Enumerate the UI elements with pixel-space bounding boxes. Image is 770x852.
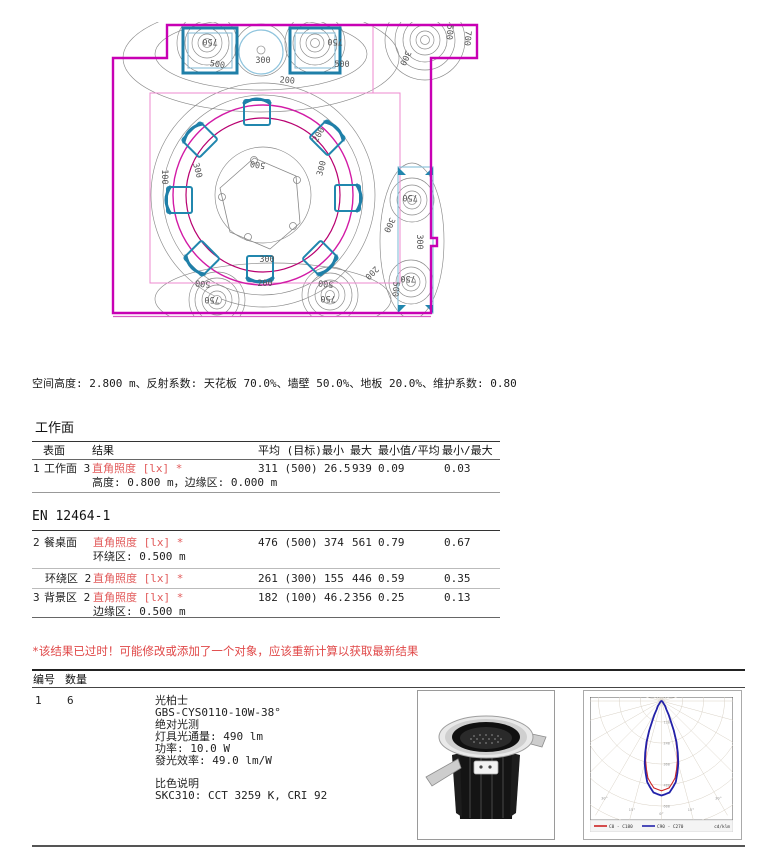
en-standard-title: EN 12464-1 xyxy=(32,510,110,525)
svg-text:30°: 30° xyxy=(715,796,722,801)
svg-text:360: 360 xyxy=(664,762,670,766)
col-min-max: 最小/最大 xyxy=(442,445,493,458)
legend-c90-label: C90 - C270 xyxy=(657,824,684,830)
legend-unit: cd/klm xyxy=(714,824,730,830)
isolux-label: 750 xyxy=(320,293,335,303)
row-min-max: 0.03 xyxy=(444,463,471,476)
rule xyxy=(32,492,500,493)
col-surface: 表面 xyxy=(43,445,65,458)
col-avg: 平均 (目标) xyxy=(258,445,322,458)
row-min: 46.2 xyxy=(324,592,351,605)
rule xyxy=(32,617,500,618)
svg-text:30°: 30° xyxy=(601,796,608,801)
row-avg: 311 (500) xyxy=(258,463,318,476)
row-result: 直角照度 [lx] * xyxy=(93,592,183,605)
dining-table xyxy=(219,157,301,250)
rule xyxy=(32,845,745,847)
polar-curve-chart: 12024036048060090°75°60°45°30°15°0°15°30… xyxy=(590,697,733,832)
row-sub: 环绕区: 0.500 m xyxy=(93,551,186,564)
isolux-label: 750 xyxy=(400,273,415,283)
row-min-max: 0.67 xyxy=(444,537,471,550)
svg-text:15°: 15° xyxy=(688,807,695,812)
photometric-diagram: 12024036048060090°75°60°45°30°15°0°15°30… xyxy=(583,690,742,840)
isolux-label: 300 xyxy=(381,216,397,234)
luminaire-efficacy: 發光效率: 49.0 lm/W xyxy=(155,755,327,767)
row-max: 939 xyxy=(352,463,372,476)
isolux-label: 100 xyxy=(159,169,169,184)
row-max: 446 xyxy=(352,573,372,586)
isolux-label: 200 xyxy=(257,279,272,289)
row-surface: 环绕区 2 xyxy=(45,573,91,586)
row-sub: 高度: 0.800 m，边缘区: 0.000 m xyxy=(92,477,277,490)
isolux-label: 750 xyxy=(202,36,217,46)
row-min-max: 0.13 xyxy=(444,592,471,605)
isolux-labels: 7505003002007505005007003005003003001002… xyxy=(159,24,473,304)
svg-text:600: 600 xyxy=(664,804,670,808)
row-result: 直角照度 [lx] * xyxy=(92,463,182,476)
svg-text:15°: 15° xyxy=(629,807,636,812)
isolux-label: 500 xyxy=(195,277,211,288)
isolux-label: 500 xyxy=(334,60,349,70)
row-num: 3 xyxy=(33,592,40,605)
row-num: 2 xyxy=(33,537,40,550)
row-min: 374 xyxy=(324,537,344,550)
row-num: 1 xyxy=(33,463,40,476)
row-surface: 工作面 3 xyxy=(44,463,90,476)
row-min-avg: 0.79 xyxy=(378,537,405,550)
col-id: 编号 xyxy=(33,674,55,687)
row-min-avg: 0.09 xyxy=(378,463,405,476)
row-min: 26.5 xyxy=(324,463,351,476)
luminaire-qty: 6 xyxy=(67,695,74,708)
rule xyxy=(32,441,500,442)
floor-plan: 7505003002007505005007003005003003001002… xyxy=(100,10,492,330)
isolux-label: 300 xyxy=(255,56,270,66)
row-min: 155 xyxy=(324,573,344,586)
isolux-label: 500 xyxy=(209,59,226,71)
isolux-label: 300 xyxy=(315,160,329,177)
isolux-label: 200 xyxy=(279,75,295,86)
row-surface: 餐桌面 xyxy=(44,537,77,550)
room-summary: 空间高度: 2.800 m、反射系数: 天花板 70.0%、墙壁 50.0%、地… xyxy=(32,378,517,391)
luminaire-id: 1 xyxy=(35,695,42,708)
rule xyxy=(32,568,500,569)
svg-text:240: 240 xyxy=(664,741,670,745)
legend-c0-label: C0 - C180 xyxy=(609,824,633,830)
rule xyxy=(32,459,500,460)
col-min-avg: 最小值/平均 xyxy=(378,445,440,458)
row-max: 561 xyxy=(352,537,372,550)
trim-ring xyxy=(439,716,533,758)
luminaire-details: 光柏士 GBS-CYS0110-10W-38° 绝对光测 灯具光通量: 490 … xyxy=(155,695,327,802)
isolux-label: 500 xyxy=(389,281,400,297)
row-avg: 476 (500) xyxy=(258,537,318,550)
isolux-label: 300 xyxy=(414,234,424,249)
isolux-label: 700 xyxy=(461,30,472,46)
luminaire-photo xyxy=(417,690,555,840)
row-min-avg: 0.59 xyxy=(378,573,405,586)
rule xyxy=(32,687,745,688)
isolux-label: 200 xyxy=(311,126,327,144)
svg-text:120: 120 xyxy=(664,720,670,724)
polar-legend: C0 - C180 C90 - C270 cd/klm xyxy=(590,820,733,832)
isolux-label: 750 xyxy=(402,192,417,202)
svg-text:480: 480 xyxy=(664,783,670,787)
row-min-max: 0.35 xyxy=(444,573,471,586)
col-max: 最大 xyxy=(350,445,372,458)
col-min: 最小 xyxy=(322,445,344,458)
connector-block xyxy=(474,761,498,774)
isolux-label: 500 xyxy=(249,158,266,170)
isolux-label: 500 xyxy=(318,277,334,288)
isolux-label: 300 xyxy=(397,49,413,67)
svg-text:0°: 0° xyxy=(659,811,664,816)
outdated-warning: *该结果已过时！可能修改或添加了一个对象，应该重新计算以获取最新结果 xyxy=(32,645,418,658)
rule xyxy=(32,530,500,531)
row-avg: 261 (300) xyxy=(258,573,318,586)
isolux-label: 200 xyxy=(362,263,380,281)
row-result: 直角照度 [lx] * xyxy=(93,573,183,586)
worksurface-title: 工作面 xyxy=(35,422,74,437)
isolux-label: 750 xyxy=(327,36,342,46)
row-max: 356 xyxy=(352,592,372,605)
row-surface: 背景区 2 xyxy=(44,592,90,605)
rule xyxy=(32,588,500,589)
row-avg: 182 (100) xyxy=(258,592,318,605)
isolux-label: 300 xyxy=(259,255,274,265)
col-qty: 数量 xyxy=(65,674,87,687)
row-result: 直角照度 [lx] * xyxy=(93,537,183,550)
downlight-drawing xyxy=(418,691,554,839)
report-page: 7505003002007505005007003005003003001002… xyxy=(0,0,770,852)
col-result: 结果 xyxy=(92,445,114,458)
isolux-label: 500 xyxy=(443,24,454,40)
isolux-label: 750 xyxy=(204,294,219,304)
rule xyxy=(32,669,745,671)
row-min-avg: 0.25 xyxy=(378,592,405,605)
luminaire-color-spec: SKC310: CCT 3259 K, CRI 92 xyxy=(155,790,327,802)
isolux-label: 300 xyxy=(190,162,204,179)
